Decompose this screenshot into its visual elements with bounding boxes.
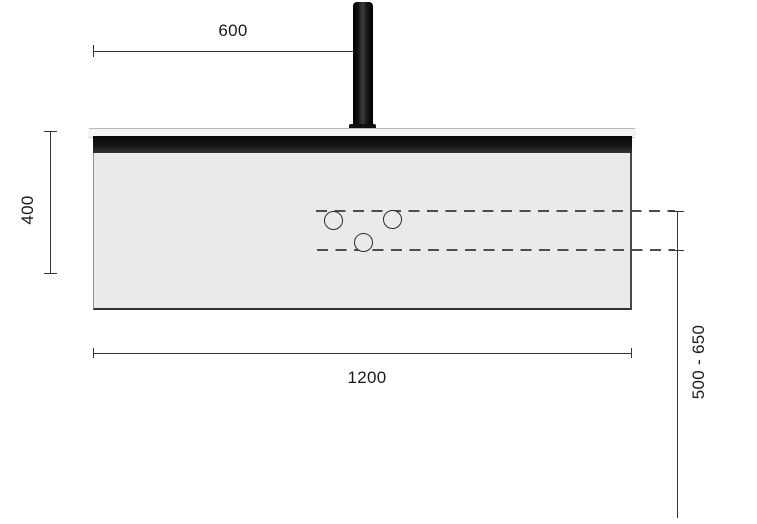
dimension-tick: [44, 131, 57, 132]
dimension-line-600: [93, 51, 354, 52]
cabinet-front-panel: [93, 153, 632, 310]
dimension-label-600: 600: [218, 21, 247, 41]
dimension-tick: [93, 348, 94, 358]
dimension-label-400: 400: [18, 195, 38, 224]
countertop-front-edge: [93, 136, 632, 153]
dimension-tick: [93, 45, 94, 57]
technical-drawing: 600 400 1200 500 - 650: [0, 0, 757, 524]
dimension-label-1200: 1200: [347, 368, 386, 388]
outlet-zone-upper-dashed-line: [316, 210, 675, 212]
dimension-tick: [669, 250, 684, 251]
outlet-zone-lower-dashed-line: [317, 249, 675, 251]
outlet-hole: [383, 210, 402, 229]
outlet-hole: [324, 211, 343, 230]
dimension-line-1200: [93, 353, 632, 354]
dimension-line-500-650: [677, 212, 678, 518]
dimension-label-500-650: 500 - 650: [689, 325, 709, 400]
outlet-hole: [354, 233, 373, 252]
faucet-pipe: [353, 2, 373, 126]
dimension-tick: [44, 273, 57, 274]
dimension-tick: [669, 211, 684, 212]
dimension-tick: [631, 348, 632, 358]
dimension-line-400: [50, 131, 51, 274]
